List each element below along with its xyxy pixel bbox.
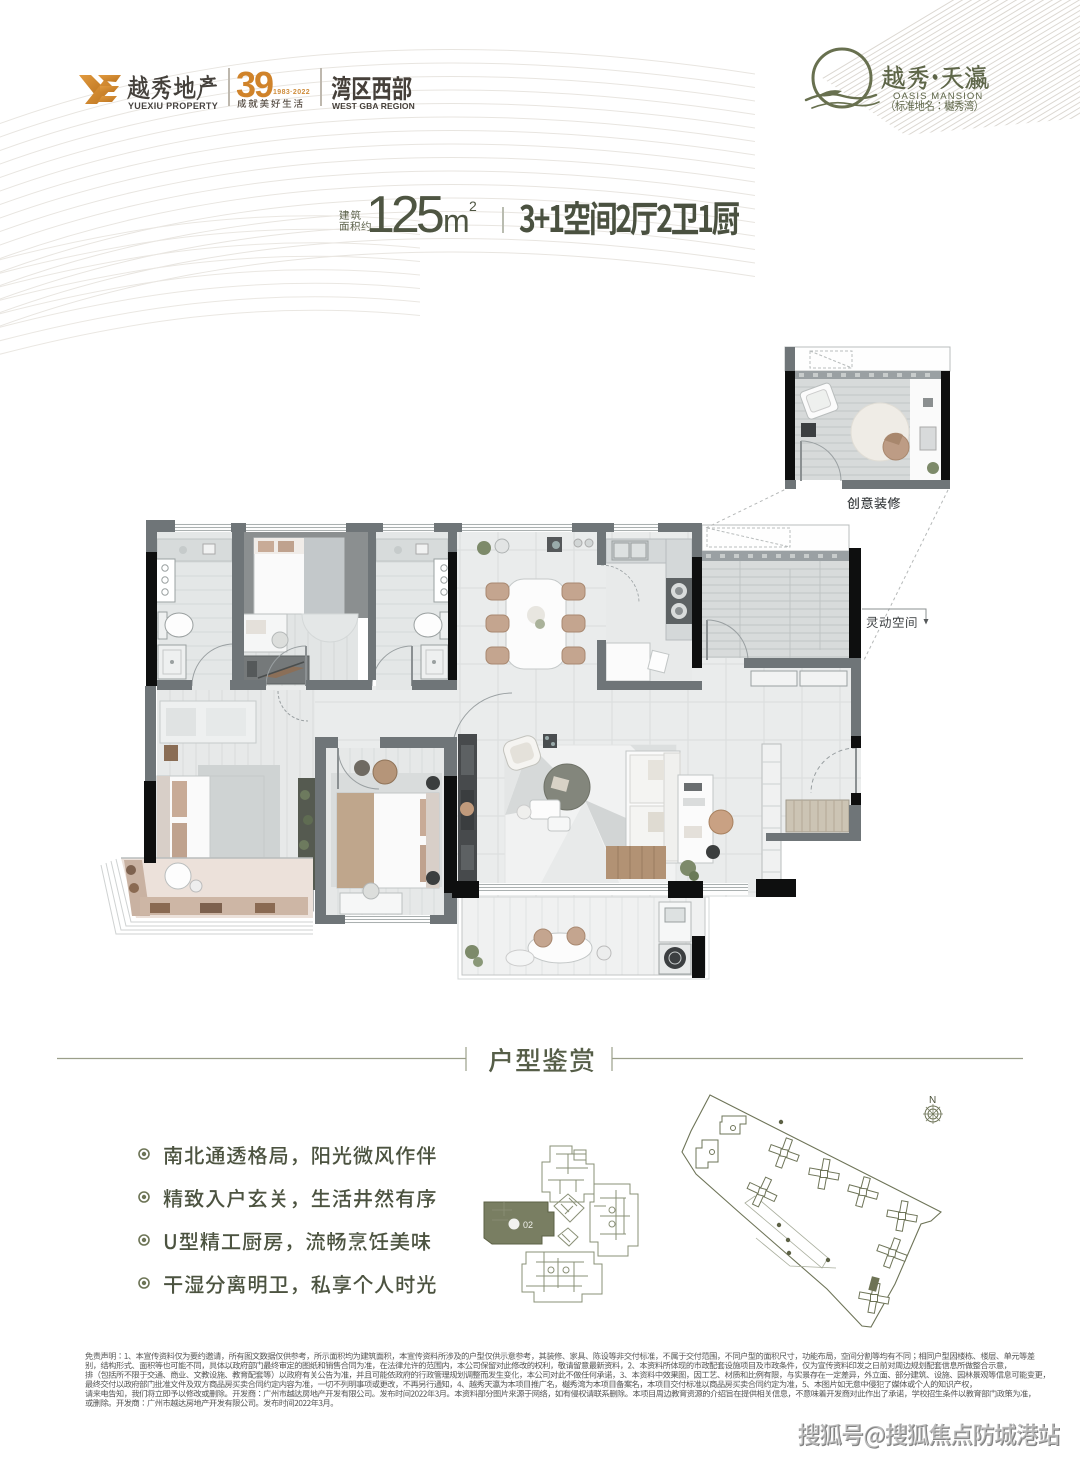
svg-text:125: 125: [366, 186, 443, 244]
svg-text:1983·2022: 1983·2022: [273, 89, 310, 96]
svg-text:N: N: [929, 1095, 936, 1106]
svg-text:m: m: [443, 203, 470, 239]
svg-text:02: 02: [523, 1220, 533, 1230]
svg-text:39: 39: [236, 64, 273, 105]
svg-text:2: 2: [469, 198, 477, 214]
svg-text:OASIS MANSION: OASIS MANSION: [893, 91, 983, 102]
svg-text:YUEXIU PROPERTY: YUEXIU PROPERTY: [128, 101, 218, 111]
svg-text:WEST GBA REGION: WEST GBA REGION: [332, 101, 415, 111]
